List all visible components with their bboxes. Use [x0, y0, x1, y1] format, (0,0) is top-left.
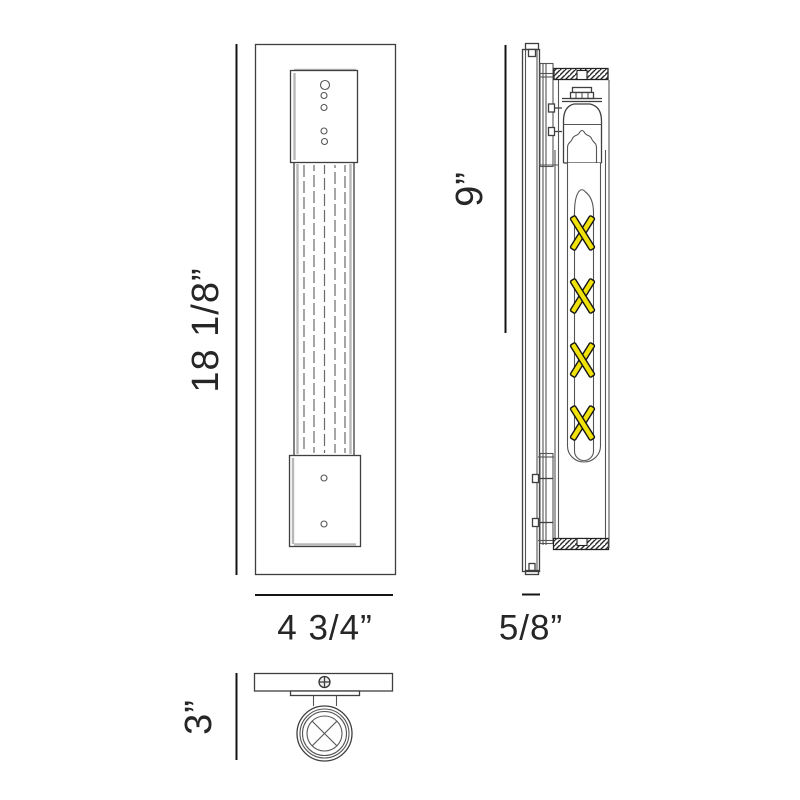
wall-plate — [523, 44, 540, 575]
bottom-screw-icon — [529, 564, 535, 571]
screw-hole — [321, 475, 327, 481]
screw-hole — [321, 521, 327, 527]
top-view-glass-circle — [297, 706, 352, 761]
dimension-drawing-page: 18 1/8” 4 3/4” — [0, 0, 800, 800]
socket-bell — [564, 104, 602, 163]
phillips-screw-icon — [319, 677, 330, 688]
bolt-head-icon — [549, 104, 555, 112]
depth-dimension-label: 5/8” — [499, 609, 563, 648]
projection-dimension-label: 3” — [178, 699, 220, 735]
socket-tip — [573, 88, 592, 93]
top-cap-notch — [577, 71, 587, 80]
screw-hole — [321, 93, 327, 99]
top-view-subplate — [291, 691, 360, 696]
top-screw-cap-icon — [526, 44, 539, 50]
screw-hole — [322, 139, 328, 145]
side-view: 9” 5/8” — [449, 44, 609, 648]
width-dimension-label: 4 3/4” — [277, 609, 373, 648]
bolt-head-icon — [533, 519, 539, 527]
side-height-dimension-label: 9” — [449, 171, 491, 207]
bolt-head-icon — [549, 128, 555, 136]
lamp-socket — [562, 88, 602, 164]
bottom-screw-cap-icon — [526, 571, 539, 575]
height-dimension-label: 18 1/8” — [185, 267, 227, 392]
fixture-dimension-drawing: 18 1/8” 4 3/4” — [0, 0, 800, 800]
top-block — [291, 70, 358, 163]
screw-hole — [321, 105, 327, 111]
screw-hole — [321, 128, 327, 134]
front-view: 18 1/8” 4 3/4” — [185, 44, 396, 648]
top-end-cap — [554, 69, 608, 80]
bottom-end-cap — [554, 539, 609, 550]
top-view: 3” — [178, 673, 393, 761]
bottom-block — [290, 456, 361, 547]
bottom-cap-notch — [577, 539, 587, 546]
bolt-head-icon — [533, 475, 539, 483]
wire-hole — [321, 81, 330, 90]
top-screw-icon — [529, 50, 536, 57]
tubular-lamp — [568, 163, 601, 462]
bottom-block-outline — [290, 456, 361, 547]
